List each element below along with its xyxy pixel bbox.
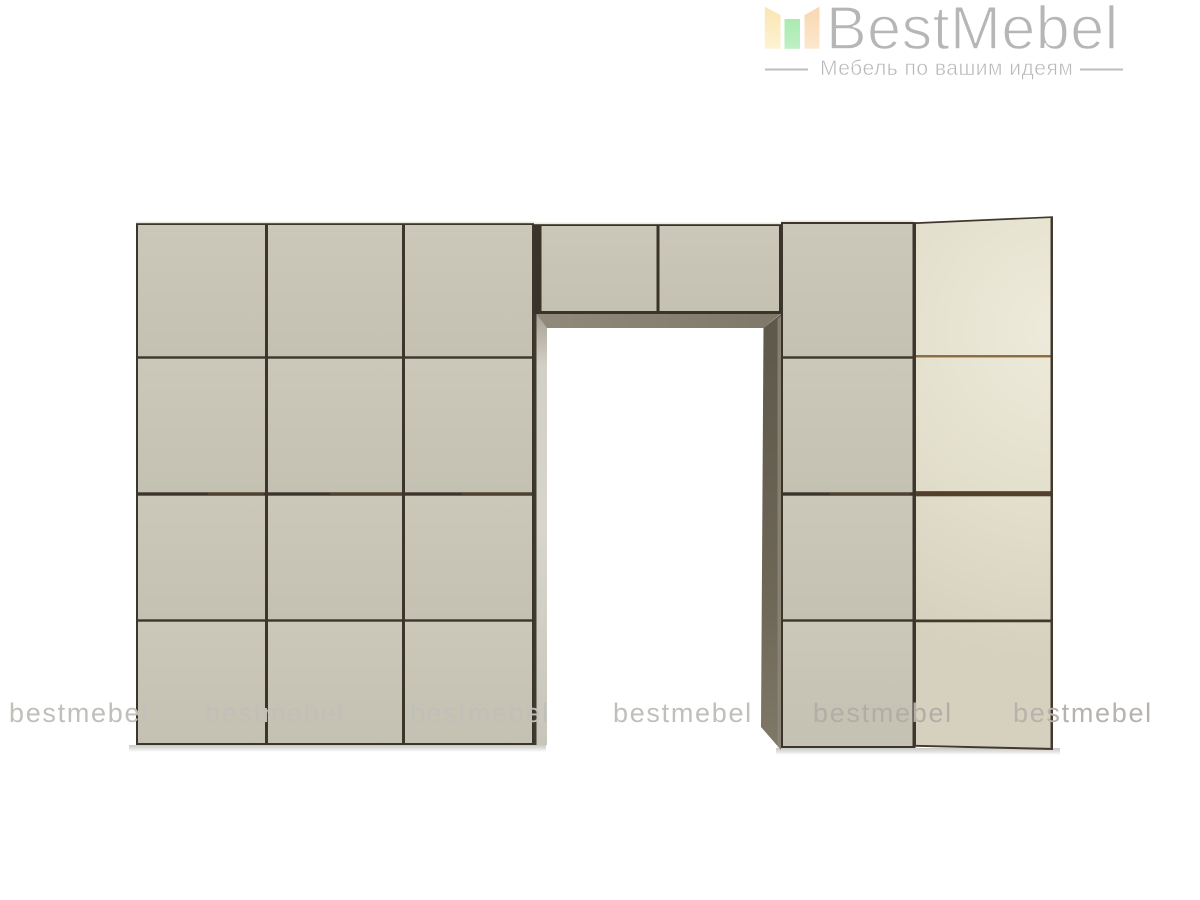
svg-text:bestmebel: bestmebel [613,698,753,728]
svg-text:bestmebel: bestmebel [1013,698,1153,728]
svg-text:Мебель по вашим идеям: Мебель по вашим идеям [820,57,1073,80]
svg-text:bestmebel: bestmebel [813,698,953,728]
svg-text:BestMebel: BestMebel [826,0,1119,62]
svg-text:bestmebel: bestmebel [9,698,149,728]
svg-text:bestmebel: bestmebel [205,698,345,728]
svg-text:bestmebel: bestmebel [410,698,550,728]
